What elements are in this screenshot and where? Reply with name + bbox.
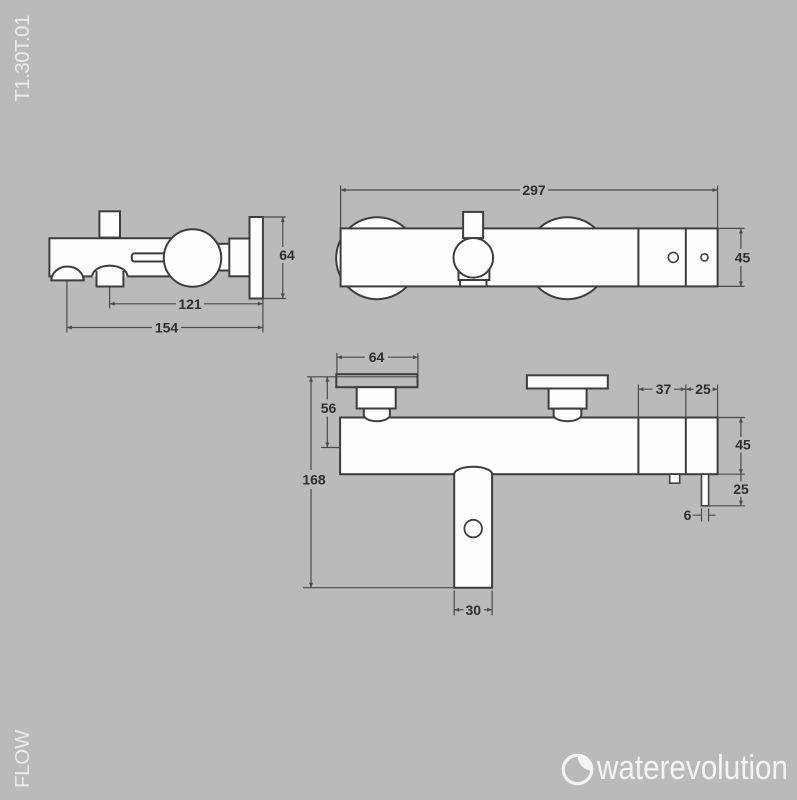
svg-text:waterevolution: waterevolution <box>596 749 788 787</box>
svg-text:30: 30 <box>466 602 482 618</box>
svg-text:45: 45 <box>735 437 751 453</box>
svg-text:297: 297 <box>522 182 546 198</box>
svg-text:64: 64 <box>369 349 385 365</box>
svg-text:64: 64 <box>279 247 295 263</box>
svg-text:6: 6 <box>684 507 692 523</box>
svg-text:154: 154 <box>155 320 179 336</box>
svg-text:37: 37 <box>656 381 672 397</box>
svg-text:168: 168 <box>302 472 326 488</box>
svg-text:56: 56 <box>321 400 337 416</box>
svg-text:25: 25 <box>733 481 749 497</box>
svg-text:121: 121 <box>178 296 202 312</box>
svg-text:T1.30T.01: T1.30T.01 <box>11 15 34 102</box>
svg-text:FLOW: FLOW <box>11 729 34 788</box>
svg-text:25: 25 <box>695 381 711 397</box>
svg-text:45: 45 <box>735 250 751 266</box>
